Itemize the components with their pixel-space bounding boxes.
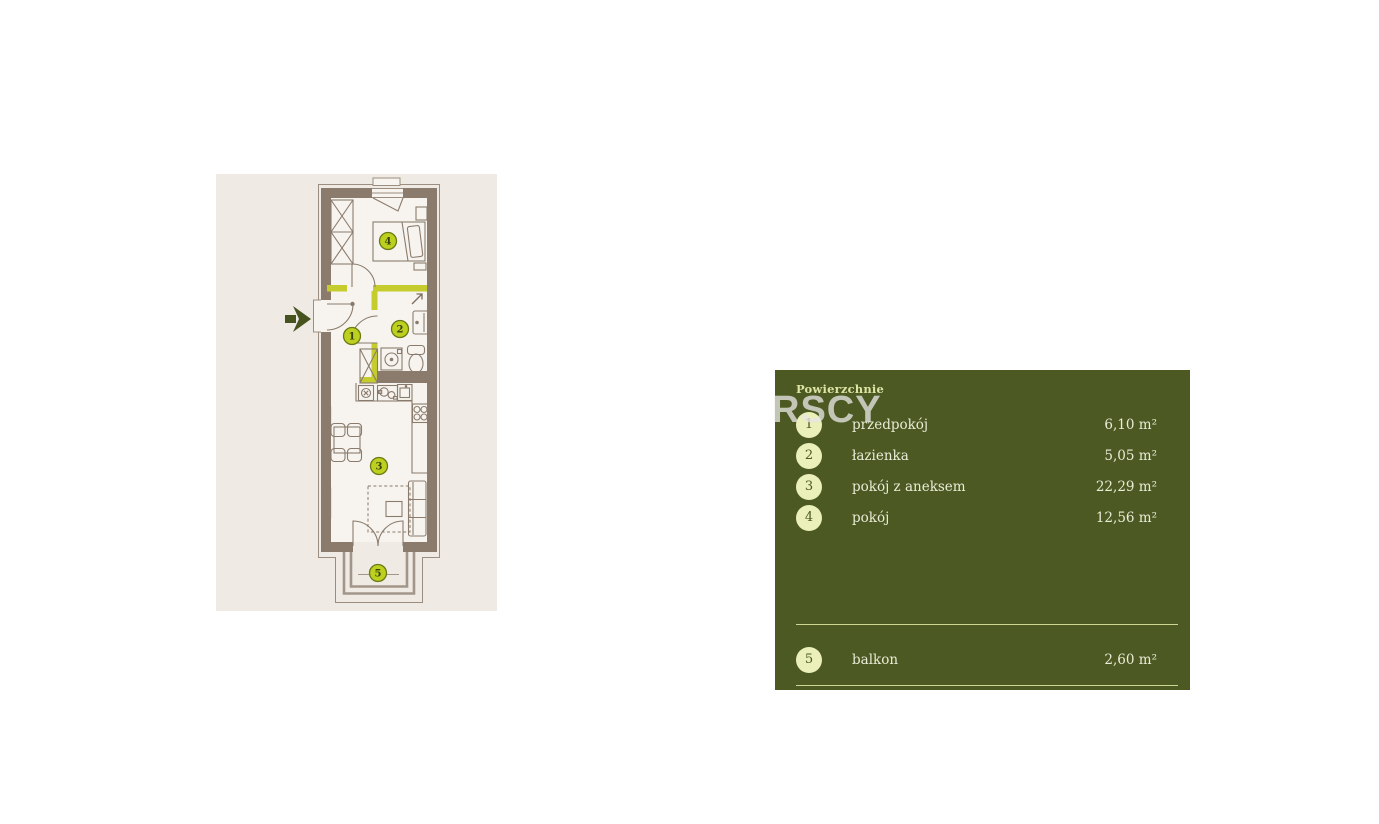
room-label: przedpokój — [852, 412, 928, 438]
legend-row: 2 łazienka 5,05 m² — [775, 443, 1190, 469]
room-area: 22,29 m² — [1096, 474, 1157, 500]
room-area: 6,10 m² — [1104, 412, 1157, 438]
room-number-badge: 2 — [796, 443, 822, 469]
room-number-badge: 4 — [796, 505, 822, 531]
legend-row: 4 pokój 12,56 m² — [775, 505, 1190, 531]
plan-marker-number: 2 — [397, 325, 404, 336]
room-label: pokój z aneksem — [852, 474, 966, 500]
entrance-arrow-icon — [285, 306, 311, 332]
legend-row: 1 przedpokój 6,10 m² — [775, 412, 1190, 438]
room-area: 2,60 m² — [1104, 647, 1157, 673]
room-label: pokój — [852, 505, 889, 531]
panel-title: Powierzchnie — [796, 382, 884, 396]
room-number-badge: 5 — [796, 647, 822, 673]
floorplan-drawing: 12345 — [216, 174, 497, 611]
plan-marker-number: 3 — [376, 462, 383, 473]
room-number-badge: 1 — [796, 412, 822, 438]
plan-marker-number: 4 — [385, 237, 392, 248]
legend-row: 5 balkon 2,60 m² — [775, 647, 1190, 673]
plan-marker-number: 1 — [349, 332, 356, 343]
divider — [796, 624, 1178, 625]
plan-marker-number: 5 — [375, 569, 382, 580]
room-label: łazienka — [852, 443, 909, 469]
room-area: 5,05 m² — [1104, 443, 1157, 469]
area-legend-panel: Powierzchnie RSCY 1 przedpokój 6,10 m² 2… — [775, 370, 1190, 690]
floorplan-card: 12345 — [216, 174, 497, 611]
divider — [796, 685, 1178, 686]
room-area: 12,56 m² — [1096, 505, 1157, 531]
room-label: balkon — [852, 647, 898, 673]
legend-row: 3 pokój z aneksem 22,29 m² — [775, 474, 1190, 500]
page: 12345 Powierzchnie RSCY 1 przedpokój 6,1… — [0, 0, 1379, 824]
room-number-badge: 3 — [796, 474, 822, 500]
